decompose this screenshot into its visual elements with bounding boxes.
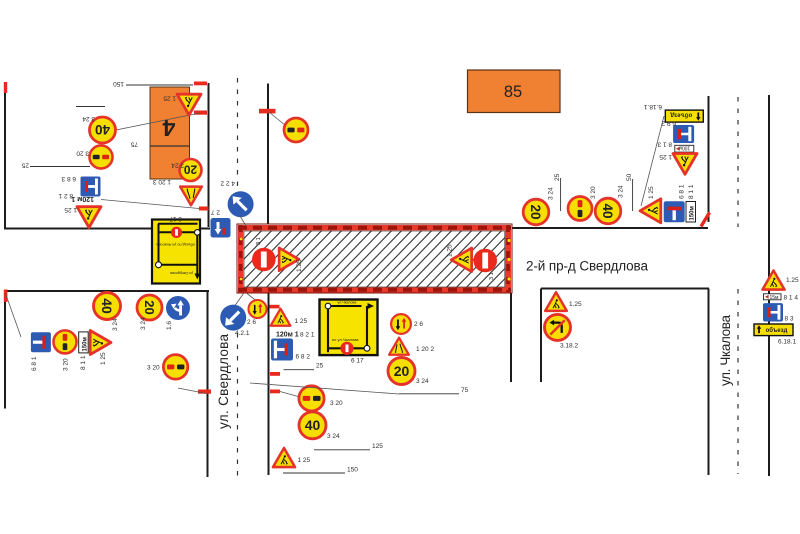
svg-text:1 20 3: 1 20 3 bbox=[153, 178, 171, 185]
svg-text:120м 1: 120м 1 bbox=[71, 195, 94, 202]
svg-text:объезд: объезд bbox=[670, 112, 692, 119]
svg-text:3 24: 3 24 bbox=[140, 317, 147, 330]
svg-text:3 20: 3 20 bbox=[76, 150, 89, 157]
svg-text:125: 125 bbox=[372, 443, 383, 450]
svg-text:6 8 1: 6 8 1 bbox=[31, 356, 38, 371]
svg-text:85: 85 bbox=[504, 83, 522, 101]
svg-text:20: 20 bbox=[142, 300, 157, 314]
svg-text:3 24: 3 24 bbox=[327, 433, 340, 440]
svg-text:3 24: 3 24 bbox=[112, 318, 119, 331]
svg-text:ул.Чкалова: ул.Чкалова bbox=[338, 301, 357, 305]
svg-text:40: 40 bbox=[95, 122, 110, 137]
svg-text:3.18.2: 3.18.2 bbox=[560, 343, 578, 350]
svg-text:3 1: 3 1 bbox=[256, 237, 262, 245]
svg-text:120м 1: 120м 1 bbox=[276, 332, 299, 339]
svg-text:объезд: объезд bbox=[766, 327, 788, 334]
svg-text:2-й пр-д Свердлова: 2-й пр-д Свердлова bbox=[526, 259, 648, 274]
svg-text:6 8 2: 6 8 2 bbox=[296, 354, 311, 361]
svg-text:6 17: 6 17 bbox=[351, 358, 364, 365]
svg-text:3 24: 3 24 bbox=[82, 115, 95, 122]
svg-text:100м: 100м bbox=[678, 145, 690, 151]
svg-text:6 8 3: 6 8 3 bbox=[61, 175, 76, 182]
svg-text:8 1 4: 8 1 4 bbox=[784, 295, 799, 302]
svg-text:150м: 150м bbox=[83, 336, 89, 351]
svg-text:1 25: 1 25 bbox=[100, 352, 107, 365]
svg-text:ул. Свердлова: ул. Свердлова bbox=[216, 334, 231, 429]
svg-text:4 2 2: 4 2 2 bbox=[220, 180, 235, 187]
svg-text:3 20: 3 20 bbox=[330, 400, 343, 407]
svg-text:6.18.1: 6.18.1 bbox=[778, 339, 796, 346]
svg-text:8 1 3: 8 1 3 bbox=[657, 141, 672, 148]
svg-text:20: 20 bbox=[528, 204, 543, 219]
svg-text:3 24: 3 24 bbox=[548, 187, 555, 200]
svg-text:ул.Свердлова: ул.Свердлова bbox=[170, 271, 193, 275]
svg-text:1 25: 1 25 bbox=[659, 153, 672, 160]
svg-text:2 7: 2 7 bbox=[211, 209, 220, 216]
svg-text:1 25: 1 25 bbox=[295, 318, 308, 325]
svg-text:3 1: 3 1 bbox=[489, 272, 495, 280]
svg-text:1 25: 1 25 bbox=[298, 457, 311, 464]
svg-text:8 1 1: 8 1 1 bbox=[80, 355, 87, 370]
svg-text:3 24: 3 24 bbox=[171, 162, 184, 169]
svg-text:75: 75 bbox=[130, 141, 138, 148]
svg-text:8 1 1: 8 1 1 bbox=[688, 184, 695, 199]
svg-text:3 24: 3 24 bbox=[416, 378, 429, 385]
svg-text:1 25: 1 25 bbox=[648, 186, 655, 199]
svg-text:75: 75 bbox=[461, 387, 469, 394]
svg-text:8 2 1: 8 2 1 bbox=[300, 332, 315, 339]
svg-text:40: 40 bbox=[99, 298, 115, 314]
svg-text:1.25: 1.25 bbox=[296, 259, 303, 272]
svg-text:3 20: 3 20 bbox=[63, 358, 70, 371]
svg-text:по ул.Чкалова: по ул.Чкалова bbox=[332, 337, 359, 342]
svg-text:150: 150 bbox=[113, 80, 124, 87]
svg-text:8 3: 8 3 bbox=[785, 316, 794, 323]
svg-text:25: 25 bbox=[316, 363, 324, 370]
svg-text:1.25: 1.25 bbox=[786, 277, 799, 284]
svg-text:6.18.1: 6.18.1 bbox=[644, 103, 662, 110]
svg-text:1 25: 1 25 bbox=[163, 95, 176, 102]
svg-text:2 6: 2 6 bbox=[247, 319, 256, 326]
svg-text:25: 25 bbox=[554, 173, 561, 181]
svg-text:1.25: 1.25 bbox=[447, 244, 454, 257]
svg-text:1 20 2: 1 20 2 bbox=[416, 346, 434, 353]
svg-text:6 17: 6 17 bbox=[169, 215, 182, 222]
svg-text:1 25: 1 25 bbox=[64, 206, 77, 213]
svg-text:2 6: 2 6 bbox=[414, 321, 423, 328]
svg-text:150м: 150м bbox=[690, 205, 696, 220]
svg-text:ул. Чкалова: ул. Чкалова bbox=[718, 315, 733, 386]
svg-text:20: 20 bbox=[394, 363, 410, 379]
svg-text:1.6: 1.6 bbox=[166, 321, 173, 330]
svg-text:6 9 2: 6 9 2 bbox=[661, 120, 676, 127]
svg-text:25: 25 bbox=[21, 162, 29, 169]
svg-text:40: 40 bbox=[600, 203, 615, 218]
svg-text:20: 20 bbox=[184, 163, 198, 177]
svg-text:8 2 1: 8 2 1 bbox=[58, 192, 73, 199]
svg-text:3 20: 3 20 bbox=[590, 186, 597, 199]
svg-text:15м: 15м bbox=[770, 295, 780, 301]
svg-text:3 24: 3 24 bbox=[618, 185, 625, 198]
svg-text:150: 150 bbox=[347, 467, 358, 474]
svg-text:объезд по ул.Чкалова: объезд по ул.Чкалова bbox=[155, 243, 195, 247]
svg-text:50: 50 bbox=[626, 173, 633, 181]
svg-text:40: 40 bbox=[305, 417, 321, 433]
svg-text:1.25: 1.25 bbox=[569, 301, 582, 308]
svg-text:3 20: 3 20 bbox=[147, 365, 160, 372]
svg-text:4.2.1: 4.2.1 bbox=[235, 330, 250, 337]
svg-text:6 8 1: 6 8 1 bbox=[679, 184, 686, 199]
